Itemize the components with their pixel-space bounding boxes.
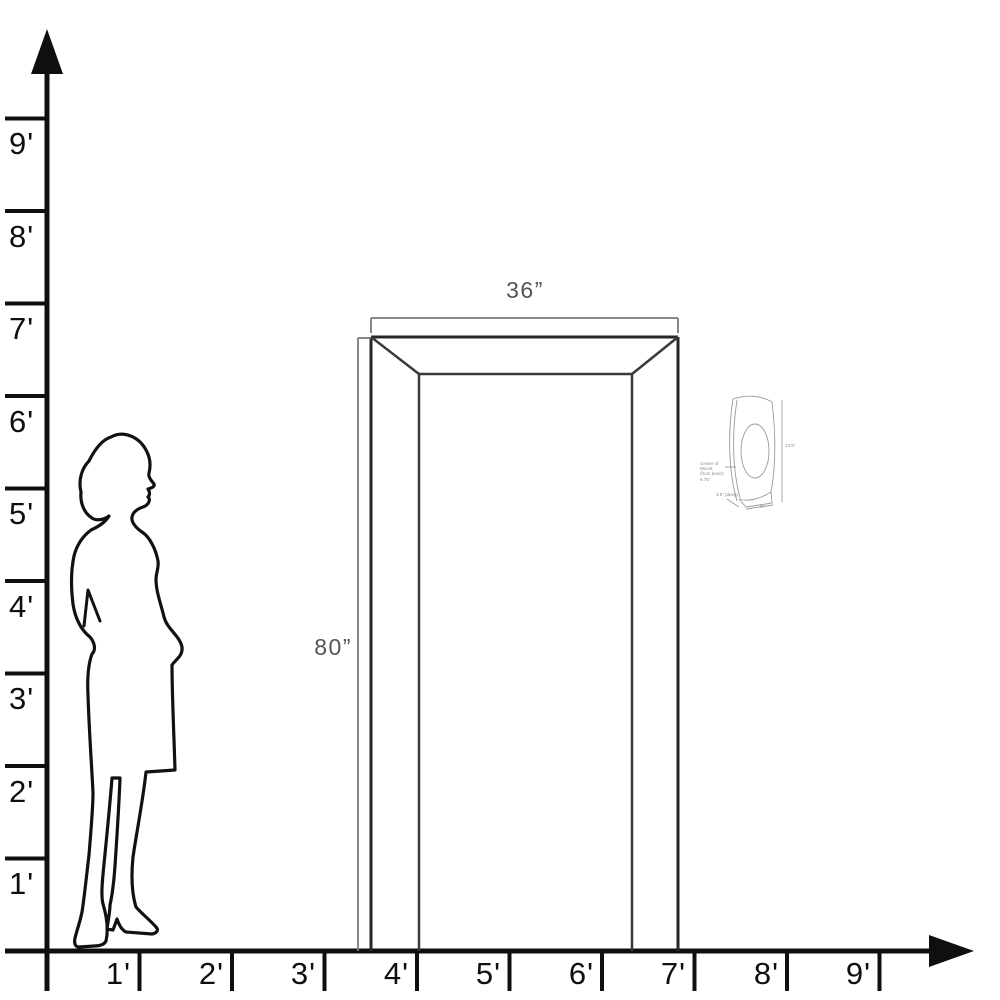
y-axis-label-5ft: 5' [9, 498, 49, 529]
x-axis-label-6ft: 6' [550, 958, 594, 989]
sconce-left-edge-inner [734, 400, 740, 498]
y-axis-label-3ft: 3' [9, 683, 49, 714]
x-axis-label-3ft: 3' [272, 958, 316, 989]
sconce-height-dimension-label: 13.5” [785, 443, 805, 448]
y-axis-label-8ft: 8' [9, 221, 49, 252]
y-axis-arrow-icon [31, 29, 63, 74]
diagram-canvas [0, 0, 1000, 1000]
woman-outline [72, 434, 182, 947]
door-corner-diagonal-right [632, 337, 678, 374]
door-width-dimension-line [371, 318, 678, 333]
x-axis-arrow-icon [929, 935, 974, 967]
x-axis-label-1ft: 1' [87, 958, 131, 989]
size-comparison-diagram: 9' 8' 7' 6' 5' 4' 3' 2' 1' 1' 2' 3' 4' 5… [0, 0, 1000, 1000]
sconce-mount-note-line2: (from base): 6.75” [700, 471, 724, 481]
y-axis-label-2ft: 2' [9, 776, 49, 807]
woman-silhouette [72, 434, 182, 947]
door-frame [358, 318, 678, 951]
door-height-dimension-line [358, 338, 371, 951]
sconce-width-dimension-label: 9” [756, 504, 768, 509]
x-axis-label-8ft: 8' [735, 958, 779, 989]
sconce-depth-dimension-label: 3.5” (deep) [716, 492, 738, 497]
sconce-right-edge [771, 402, 775, 492]
y-axis-label-6ft: 6' [9, 406, 49, 437]
x-axis-label-5ft: 5' [457, 958, 501, 989]
sconce-mount-note: Center of Mount (from base): 6.75” [700, 461, 726, 482]
x-axis-label-4ft: 4' [365, 958, 409, 989]
door-corner-diagonal-left [371, 337, 419, 374]
sconce-front-oval [741, 424, 769, 478]
sconce-bottom-edge [739, 492, 771, 500]
door-width-dimension-label: 36” [474, 279, 576, 302]
sconce-top-edge [733, 396, 772, 402]
x-axis-label-7ft: 7' [642, 958, 686, 989]
door-inner-frame [371, 337, 678, 951]
sconce-mount-note-line1: Center of Mount [700, 461, 719, 471]
x-axis-label-9ft: 9' [827, 958, 871, 989]
y-axis-label-1ft: 1' [9, 868, 49, 899]
x-axis-label-2ft: 2' [180, 958, 224, 989]
y-axis-label-7ft: 7' [9, 313, 49, 344]
y-axis-label-4ft: 4' [9, 591, 49, 622]
door-height-dimension-label: 80” [290, 636, 352, 659]
y-axis-label-9ft: 9' [9, 128, 49, 159]
